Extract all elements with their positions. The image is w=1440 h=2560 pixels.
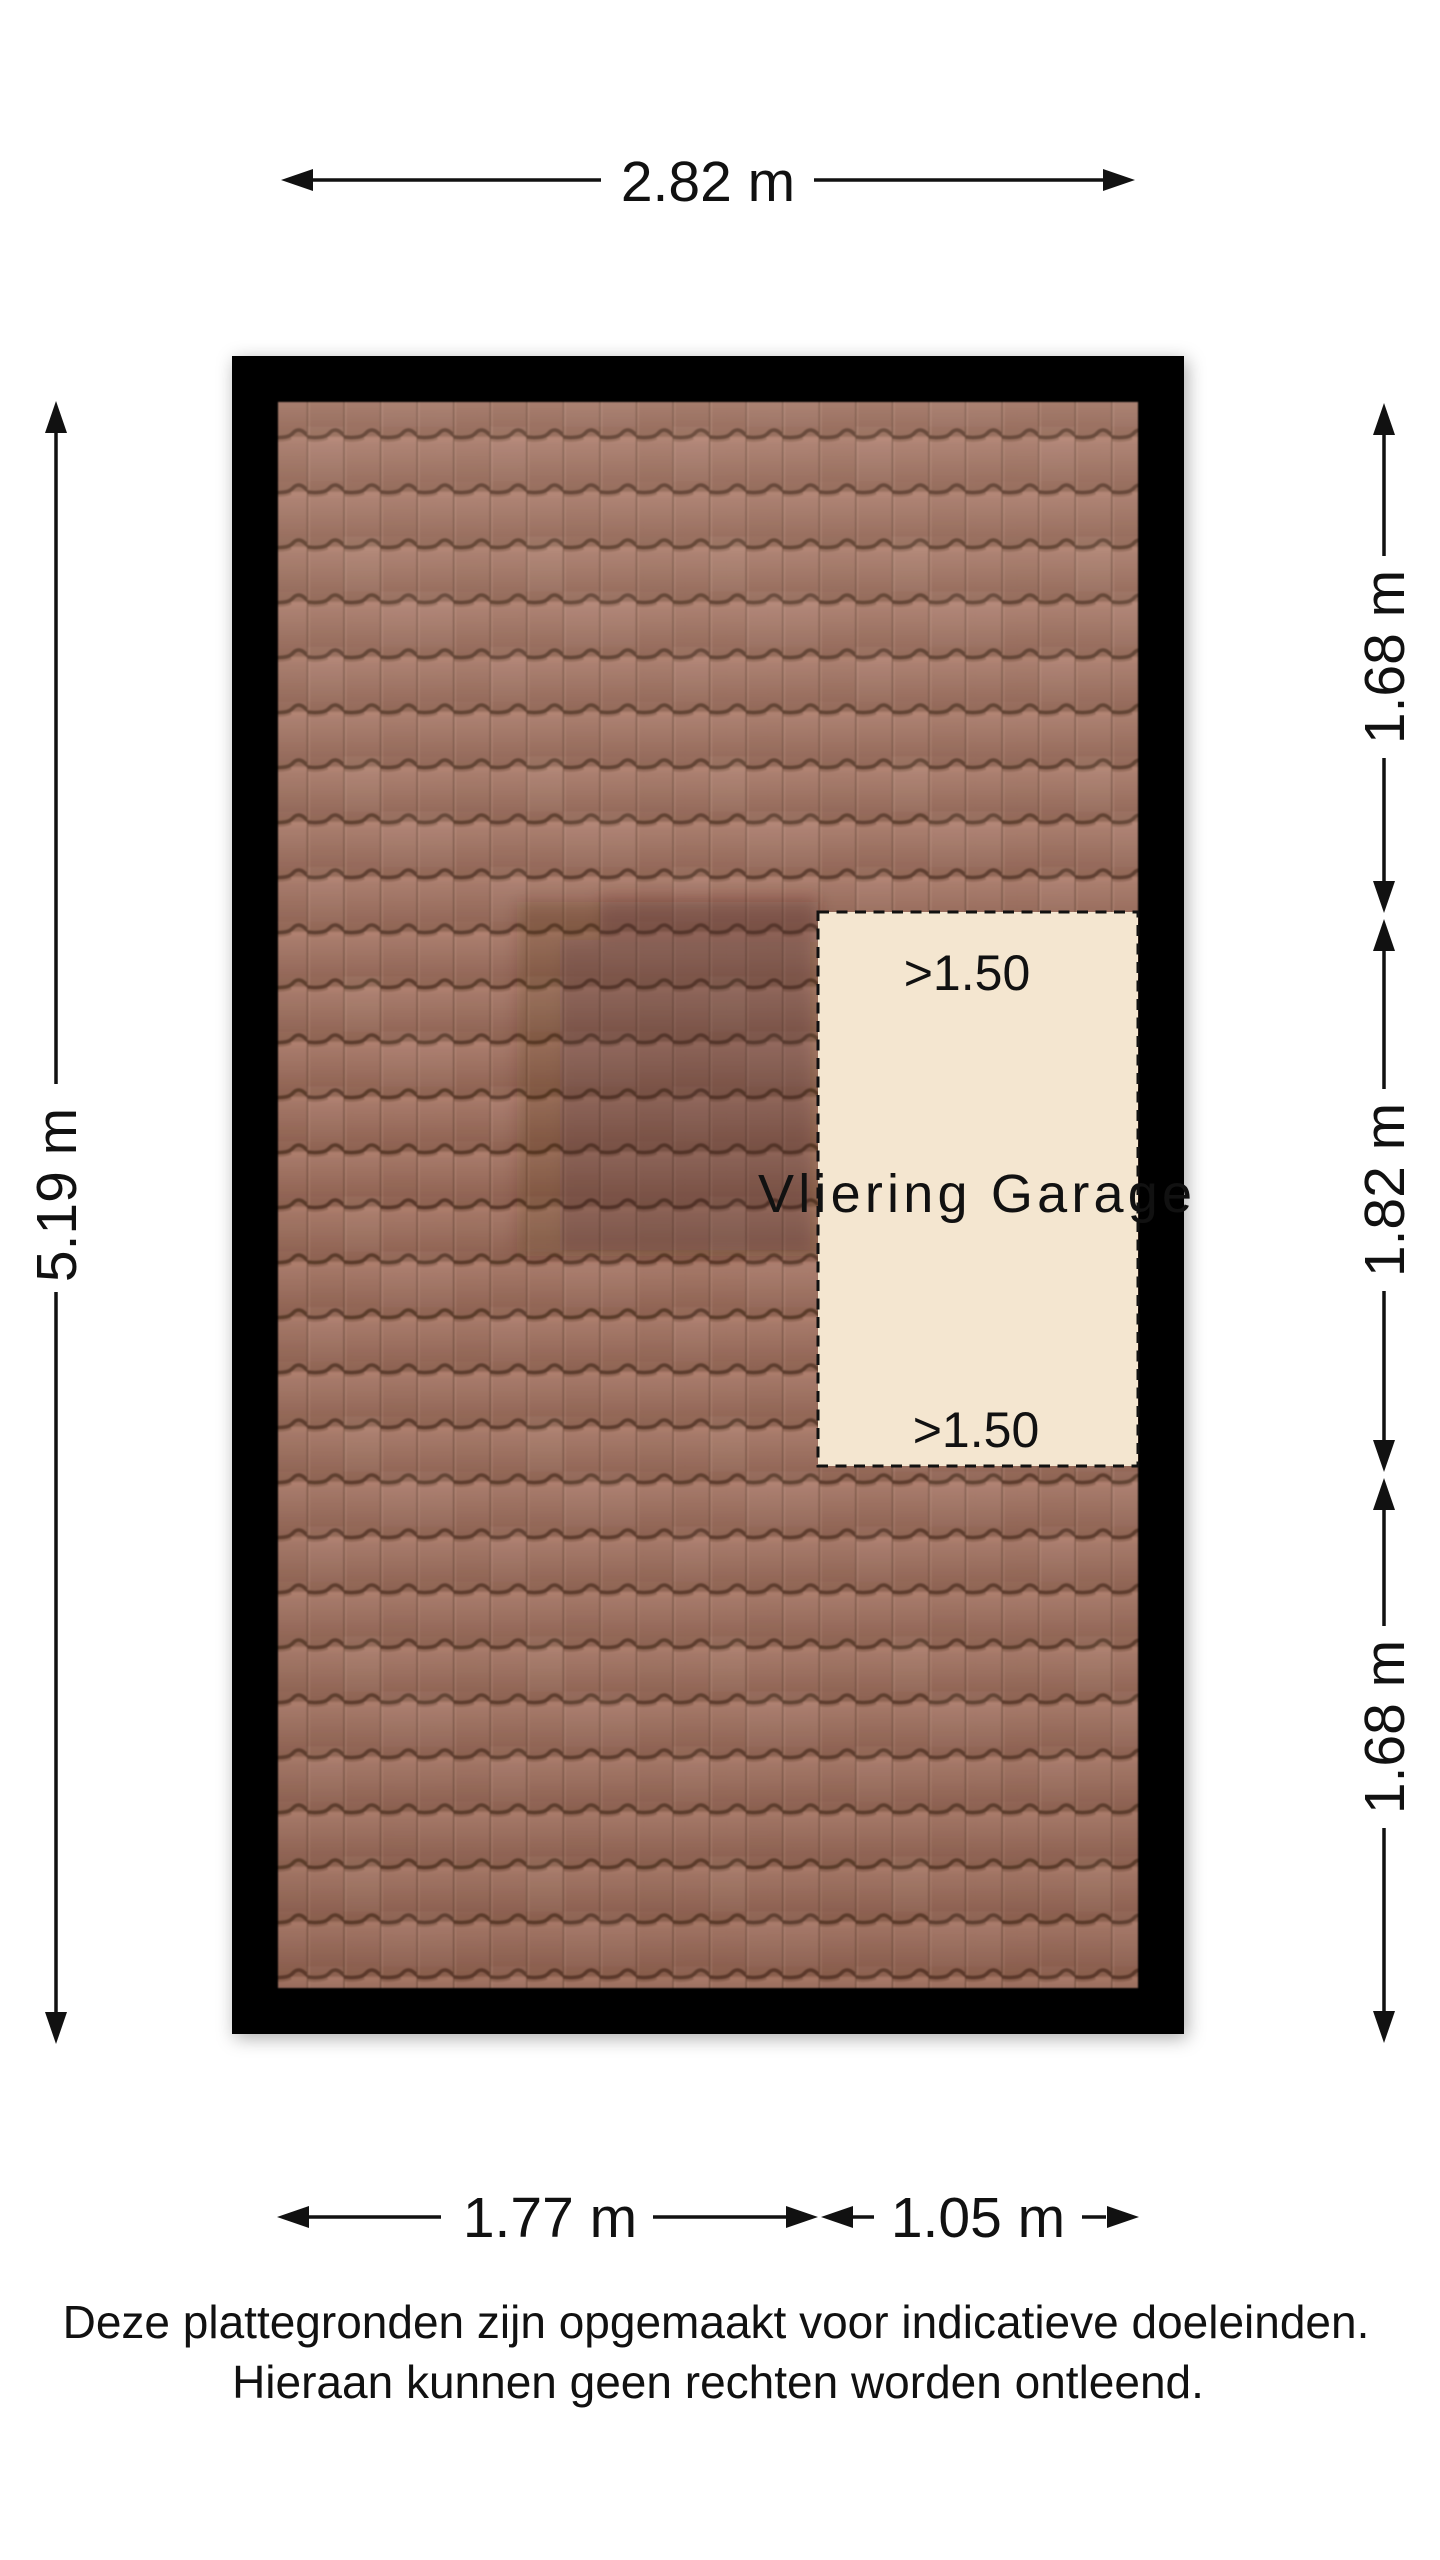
svg-text:1.05 m: 1.05 m: [891, 2186, 1065, 2250]
svg-text:Deze plattegronden zijn opgema: Deze plattegronden zijn opgemaakt voor i…: [63, 2296, 1370, 2348]
svg-text:1.77 m: 1.77 m: [463, 2186, 637, 2250]
svg-text:Vliering Garage: Vliering Garage: [758, 1164, 1196, 1224]
svg-text:1.82 m: 1.82 m: [1353, 1103, 1417, 1277]
svg-text:>1.50: >1.50: [904, 945, 1031, 1001]
svg-text:Hieraan kunnen geen rechten wo: Hieraan kunnen geen rechten worden ontle…: [232, 2356, 1204, 2408]
svg-text:2.82 m: 2.82 m: [621, 150, 795, 214]
svg-text:5.19 m: 5.19 m: [25, 1108, 89, 1282]
svg-text:1.68 m: 1.68 m: [1353, 570, 1417, 744]
svg-text:1.68 m: 1.68 m: [1353, 1640, 1417, 1814]
svg-text:>1.50: >1.50: [913, 1402, 1040, 1458]
